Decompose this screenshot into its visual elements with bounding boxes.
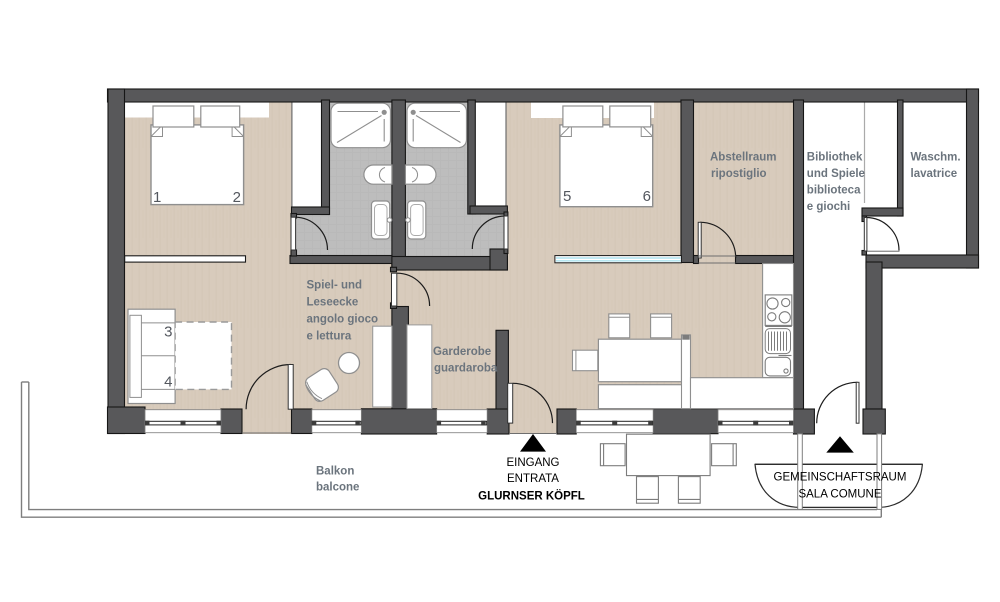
svg-text:3: 3	[164, 324, 172, 341]
svg-text:ENTRATA: ENTRATA	[507, 473, 559, 485]
svg-text:e lettura: e lettura	[307, 331, 352, 343]
svg-text:GEMEINSCHAFTSRAUM: GEMEINSCHAFTSRAUM	[774, 472, 907, 484]
svg-text:Leseecke: Leseecke	[307, 297, 359, 309]
svg-text:Garderobe: Garderobe	[433, 346, 491, 358]
svg-text:e giochi: e giochi	[807, 201, 850, 213]
svg-text:ripostiglio: ripostiglio	[711, 168, 767, 180]
svg-text:4: 4	[164, 374, 172, 391]
svg-text:Balkon: Balkon	[316, 466, 354, 478]
svg-text:lavatrice: lavatrice	[911, 168, 958, 180]
svg-text:Waschm.: Waschm.	[911, 152, 961, 164]
svg-text:und Spiele: und Spiele	[807, 168, 865, 180]
svg-text:2: 2	[233, 189, 241, 206]
svg-text:5: 5	[563, 188, 571, 205]
svg-text:Spiel- und: Spiel- und	[307, 280, 363, 292]
svg-text:GLURNSER KÖPFL: GLURNSER KÖPFL	[478, 490, 585, 503]
svg-text:angolo gioco: angolo gioco	[307, 314, 379, 326]
svg-text:6: 6	[643, 188, 651, 205]
svg-text:1: 1	[153, 189, 161, 206]
svg-text:EINGANG: EINGANG	[506, 457, 559, 469]
svg-text:SALA COMUNE: SALA COMUNE	[798, 489, 881, 501]
svg-text:Abstellraum: Abstellraum	[710, 152, 776, 164]
svg-text:balcone: balcone	[316, 482, 359, 494]
svg-text:Bibliothek: Bibliothek	[807, 152, 863, 164]
svg-text:biblioteca: biblioteca	[807, 185, 861, 197]
svg-text:guardaroba: guardaroba	[434, 363, 498, 375]
